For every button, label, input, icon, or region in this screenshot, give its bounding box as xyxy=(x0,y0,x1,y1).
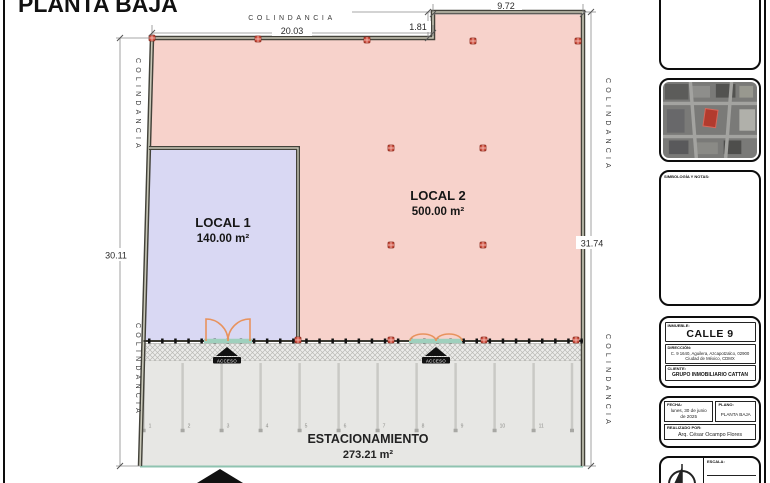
svg-text:COLINDANCIA: COLINDANCIA xyxy=(248,15,335,22)
north-arrow-icon xyxy=(662,458,702,483)
realizado-label: REALIZADO POR: xyxy=(667,426,753,431)
cliente-value: GRUPO INMOBILIARIO CATTAN xyxy=(668,372,753,379)
project-info-box: INMUEBLE: CALLE 9 DIRECCIÓN: C. 9 1640, … xyxy=(659,316,761,388)
fecha-cell: FECHA: lunes, 30 de junio de 2025 xyxy=(664,401,713,422)
location-map-box xyxy=(659,78,761,162)
svg-text:1.81: 1.81 xyxy=(409,22,427,32)
svg-text:COLINDANCIA: COLINDANCIA xyxy=(604,78,611,172)
local1-name: LOCAL 1 xyxy=(195,215,250,230)
realizado-cell: REALIZADO POR: Arq. César Ocampo Flores xyxy=(664,424,756,440)
dimension-top: 20.03 COLINDANCIA xyxy=(149,15,436,36)
svg-text:4: 4 xyxy=(266,424,269,430)
satellite-map-icon xyxy=(663,82,757,158)
cliente-section: CLIENTE: GRUPO INMOBILIARIO CATTAN xyxy=(665,365,756,380)
svg-text:8: 8 xyxy=(422,424,425,430)
compass-cell xyxy=(661,458,704,483)
entrance-arrow-icon xyxy=(197,469,243,483)
local2-area-label: 500.00 m² xyxy=(412,206,465,218)
north-scale-box: ESCALA: xyxy=(659,456,761,483)
escala-rule xyxy=(707,465,756,476)
svg-text:ACCESO: ACCESO xyxy=(426,358,446,363)
svg-text:10: 10 xyxy=(500,424,506,430)
svg-text:20.03: 20.03 xyxy=(281,26,304,36)
fecha-line2: de 2025 xyxy=(667,414,710,420)
plano-label: PLANO: xyxy=(718,403,753,408)
svg-text:9: 9 xyxy=(461,424,464,430)
inmueble-value: CALLE 9 xyxy=(668,328,753,340)
local2-name: LOCAL 2 xyxy=(410,188,465,203)
realizado-value: Arq. César Ocampo Flores xyxy=(667,432,753,438)
svg-text:COLINDANCIA: COLINDANCIA xyxy=(134,58,141,152)
svg-text:5: 5 xyxy=(305,424,308,430)
svg-text:9.72: 9.72 xyxy=(497,1,515,11)
svg-text:COLINDANCIA: COLINDANCIA xyxy=(134,323,141,417)
svg-text:COLINDANCIA: COLINDANCIA xyxy=(604,334,611,428)
simbologia-label: SIMBOLOGÍA Y NOTAS: xyxy=(664,175,756,180)
fecha-line1: lunes, 30 de junio xyxy=(667,408,710,414)
direccion-line2: Ciudad de México, CDMX xyxy=(668,356,753,362)
titleblock-empty-box xyxy=(659,0,761,70)
svg-text:2: 2 xyxy=(188,424,191,430)
direccion-section: DIRECCIÓN: C. 9 1640, Aguilera, Azcapotz… xyxy=(665,344,756,364)
escala-cell: ESCALA: xyxy=(704,458,759,483)
plano-cell: PLANO: PLANTA BAJA xyxy=(715,401,756,422)
simbologia-box: SIMBOLOGÍA Y NOTAS: xyxy=(659,170,761,306)
plano-value: PLANTA BAJA xyxy=(718,412,753,418)
svg-text:6: 6 xyxy=(344,424,347,430)
svg-text:7: 7 xyxy=(383,424,386,430)
svg-text:31.74: 31.74 xyxy=(581,239,604,249)
walkway-strip xyxy=(143,344,583,362)
plan-title: PLANTA BAJA xyxy=(18,0,178,17)
parking-area-label: 273.21 m² xyxy=(343,449,393,461)
inmueble-section: INMUEBLE: CALLE 9 xyxy=(665,322,756,343)
date-plan-box: FECHA: lunes, 30 de junio de 2025 PLANO:… xyxy=(659,396,761,448)
svg-text:30.11: 30.11 xyxy=(105,251,127,261)
svg-text:1: 1 xyxy=(149,424,152,430)
floor-plan: PLANTA BAJA 1 2 3 4 5 6 7 8 9 10 11 xyxy=(0,0,655,483)
parking-name: ESTACIONAMIENTO xyxy=(307,432,428,446)
svg-text:ACCESO: ACCESO xyxy=(217,358,237,363)
drawing-sheet: PLANTA BAJA 1 2 3 4 5 6 7 8 9 10 11 xyxy=(0,0,770,483)
svg-text:3: 3 xyxy=(227,424,230,430)
local1-area-label: 140.00 m² xyxy=(197,233,250,245)
sheet-border-left xyxy=(3,0,5,483)
sheet-border-right xyxy=(764,0,766,483)
svg-text:11: 11 xyxy=(539,424,544,430)
